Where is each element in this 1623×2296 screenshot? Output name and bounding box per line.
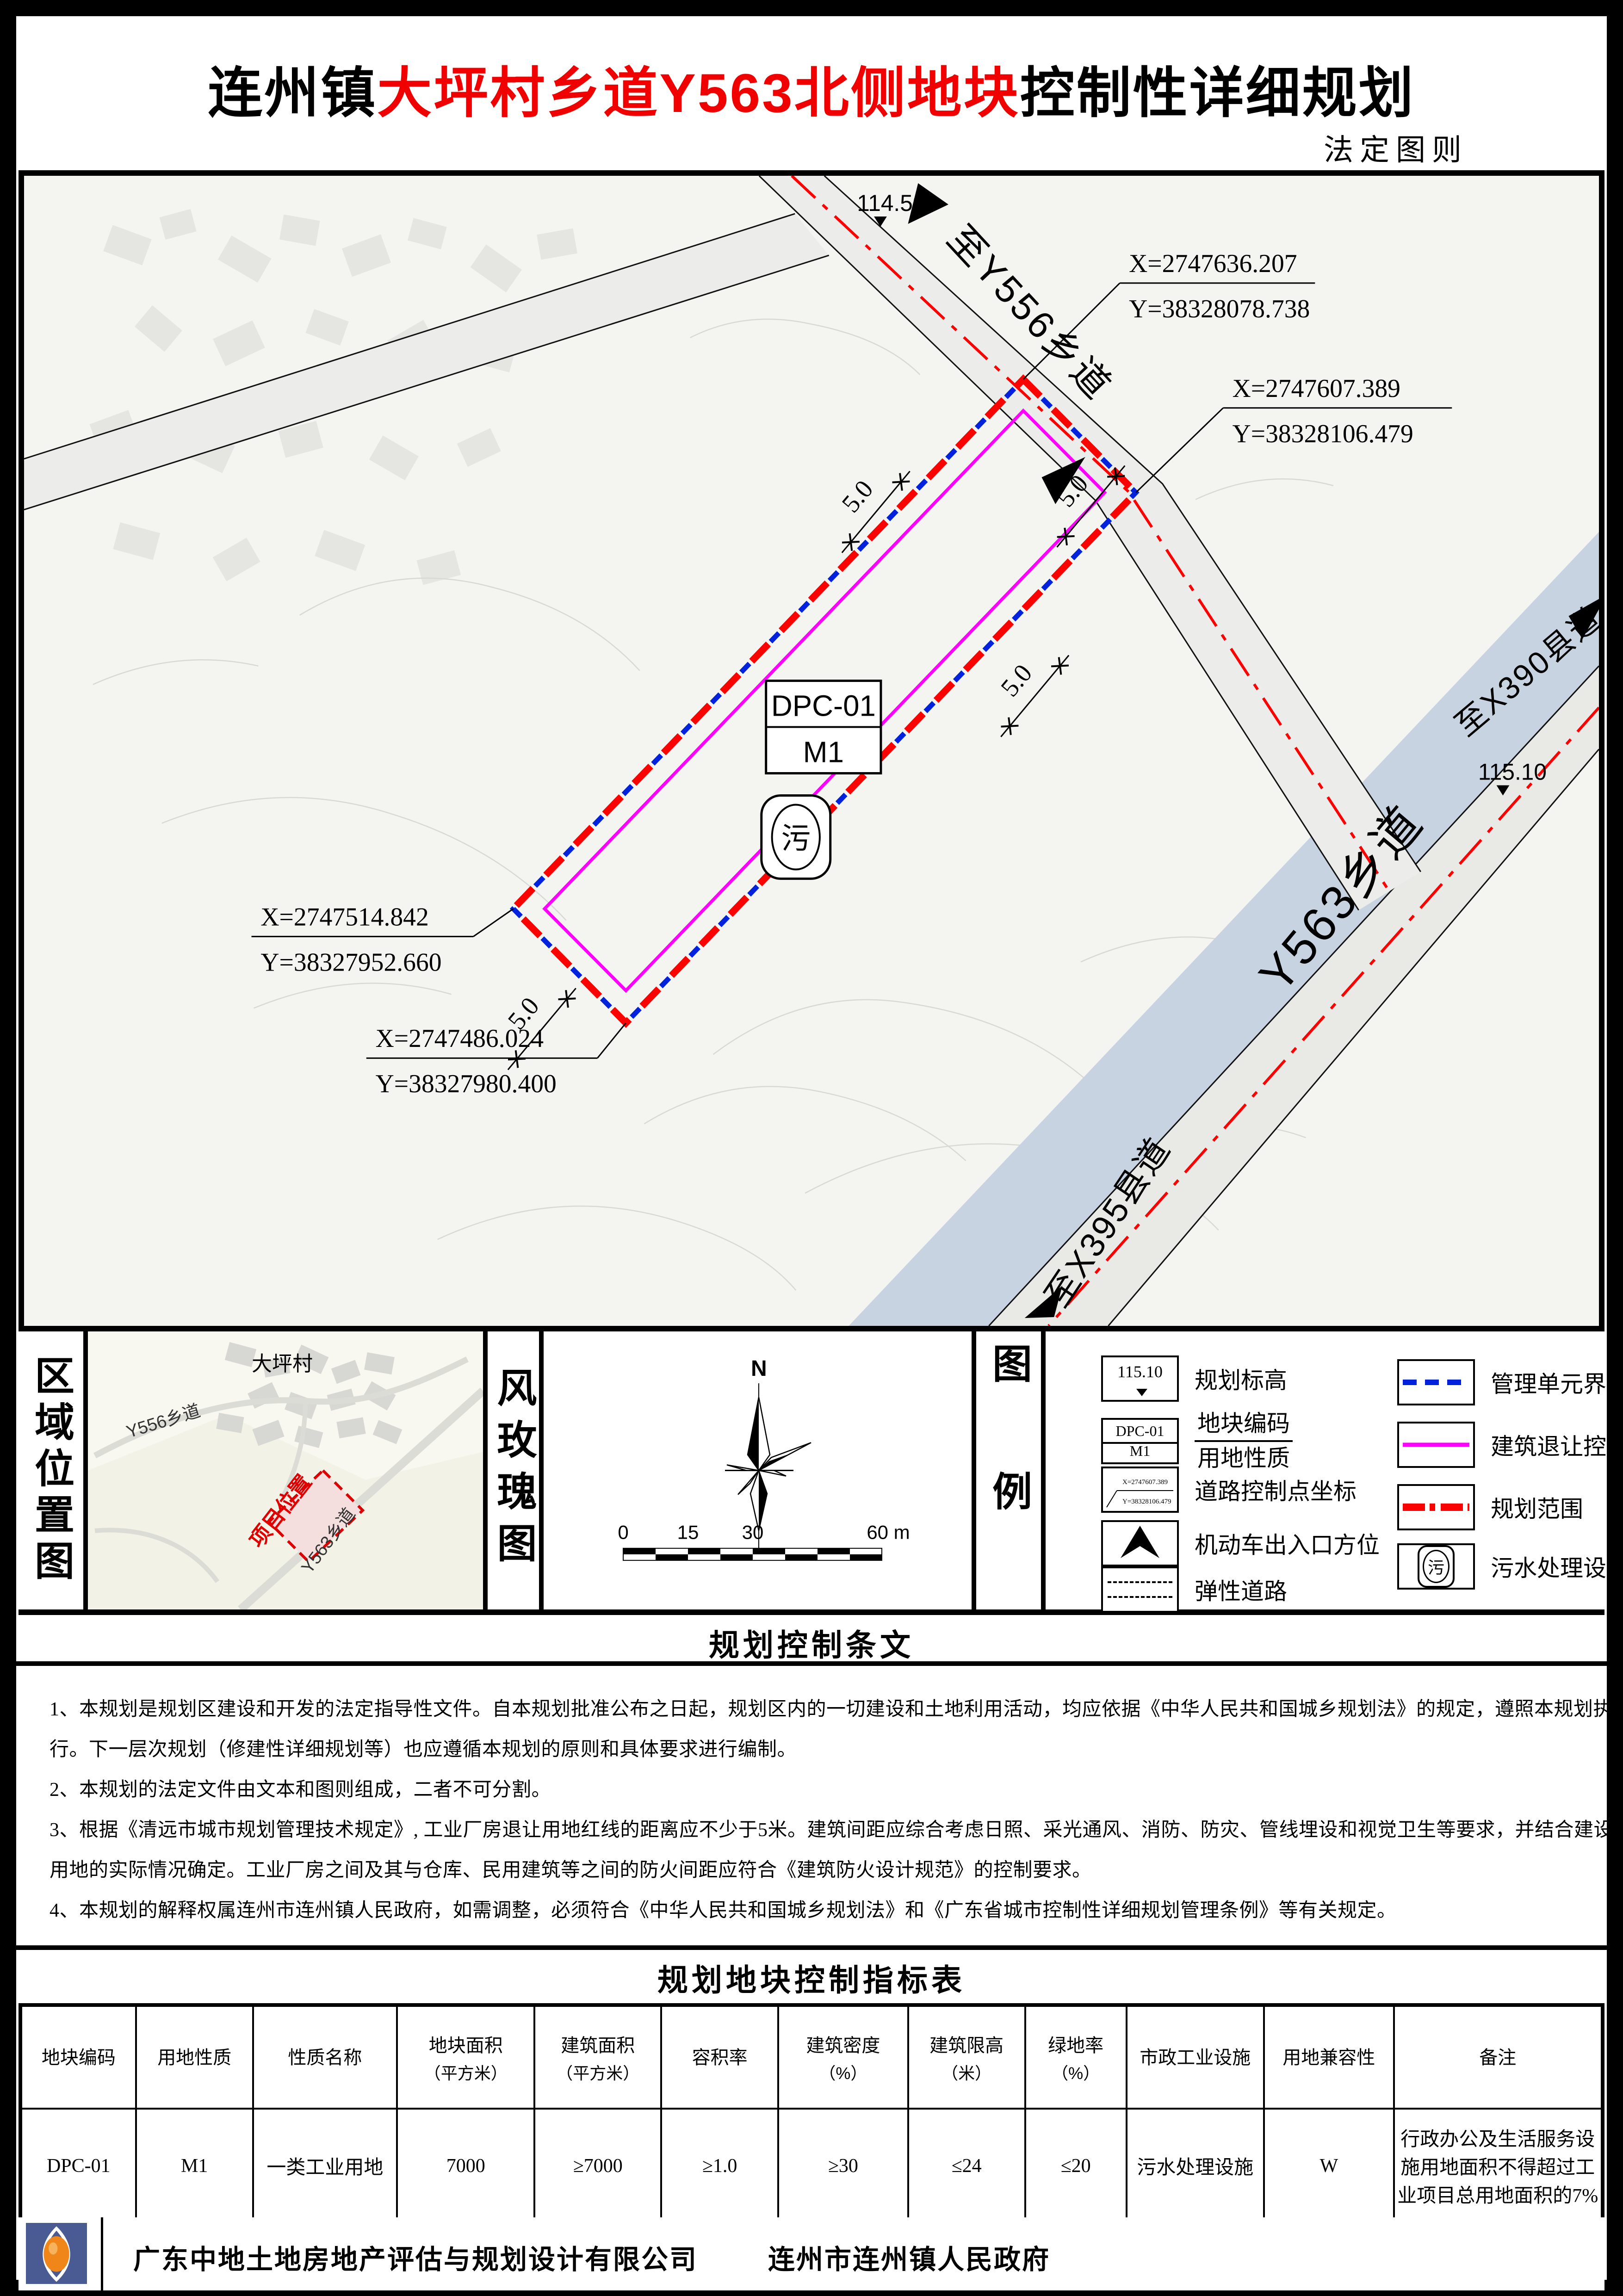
legend-item-plot-code: DPC-01 M1 地块编码 用地性质 [1101,1409,1293,1473]
col-header: 备注 [1394,2005,1603,2109]
provision-line: 1、本规划是规划区建设和开发的法定指导性文件。自本规划批准公布之日起，规划区内的… [50,1687,1576,1727]
arrow-to-y556-icon [908,183,948,224]
cp4-y: Y=38327980.400 [376,1070,557,1098]
cp2-x: X=2747607.389 [1233,374,1400,403]
windrose-icon [727,1397,811,1530]
legend-label: 污水处理设施 [1491,1550,1623,1583]
legend-item-mgmt-unit: 管理单元界线 [1397,1359,1623,1405]
elevation-tick-icon [1136,1389,1147,1396]
scale-0: 0 [618,1522,628,1543]
col-header: 性质名称 [253,2005,397,2109]
sewage-facility-icon: 污 [762,795,830,879]
blue-dash-line [1403,1380,1469,1385]
road-control-point-symbol: X=2747607.389 Y=38328106.479 [1101,1467,1179,1513]
legend-item-entrance: 机动车出入口方位 [1101,1520,1380,1566]
col-header: 地块面积（平方米） [397,2005,535,2109]
legend-item-setback: 建筑退让控制线 [1397,1422,1623,1468]
red-dashdot-line [1403,1504,1469,1511]
legend-label: 管理单元界线 [1491,1366,1623,1399]
provision-line: 用地的实际情况确定。工业厂房之间及其与仓库、民用建筑等之间的防火间距应符合《建筑… [50,1848,1576,1888]
svg-text:5.0: 5.0 [836,475,879,518]
flexible-road-symbol [1101,1566,1179,1613]
plot-code-symbol-use: M1 [1103,1442,1177,1460]
legend-panel-title: 图例 [976,1331,1041,1609]
indicator-table-title: 规划地块控制指标表 [16,1956,1607,2000]
footer-company: 广东中地土地房地产评估与规划设计有限公司 [133,2238,698,2277]
cp1-y: Y=38328078.738 [1129,295,1310,323]
mgmt-unit-symbol [1397,1359,1475,1405]
bottom-panels: 区域位置图 [19,1331,1604,1615]
main-map: DPC-01 M1 污 5.0 5.0 [19,170,1604,1331]
title-prefix: 连州镇 [208,63,377,124]
entrance-symbol [1101,1520,1179,1566]
cell-municipal-facility: 污水处理设施 [1127,2109,1264,2224]
indicator-table: 地块编码 用地性质 性质名称 地块面积（平方米） 建筑面积（平方米） 容积率 建… [19,2003,1604,2226]
company-logo [26,2223,87,2284]
legend-label: 弹性道路 [1195,1573,1287,1606]
legend-label: 地块编码 用地性质 [1195,1409,1293,1473]
dashed-line [1108,1596,1172,1598]
provisions-body: 1、本规划是规划区建设和开发的法定指导性文件。自本规划批准公布之日起，规划区内的… [50,1687,1576,1929]
divider [83,1331,88,1609]
provision-line: 3、根据《清远市城市规划管理技术规定》, 工业厂房退让用地红线的距离应不少于5米… [50,1808,1576,1848]
cell-far: ≥1.0 [661,2109,778,2224]
legend: 115.10 规划标高 DPC-01 M1 地块编码 用地性质 [1046,1331,1604,1609]
cp1-x: X=2747636.207 [1129,249,1297,278]
cp2-y: Y=38328106.479 [1233,420,1413,448]
cell-remark: 行政办公及生活服务设施用地面积不得超过工业项目总用地面积的7% [1394,2109,1603,2224]
col-header: 用地兼容性 [1264,2005,1394,2109]
provision-line: 行。下一层次规划（修建性详细规划等）也应遵循本规划的原则和具体要求进行编制。 [50,1727,1576,1768]
col-header: 地块编码 [20,2005,136,2109]
legend-label: 规划标高 [1195,1362,1287,1395]
plot-code-text: DPC-01 [771,689,876,722]
plot-code-symbol-code: DPC-01 [1103,1423,1177,1440]
col-header: 建筑面积（平方米） [534,2005,661,2109]
location-village-label: 大坪村 [252,1353,313,1375]
plot-code-symbol: DPC-01 M1 [1101,1418,1179,1464]
table-header-row: 地块编码 用地性质 性质名称 地块面积（平方米） 建筑面积（平方米） 容积率 建… [20,2005,1603,2109]
col-header: 市政工业设施 [1127,2005,1264,2109]
divider [16,2290,1607,2296]
col-header: 用地性质 [136,2005,253,2109]
divider [16,1945,1607,1950]
sewage-symbol: 污 [1397,1543,1475,1590]
windrose-panel: N [544,1331,972,1609]
divider [539,1331,544,1609]
title-suffix: 控制性详细规划 [1020,63,1415,124]
scale-30: 30 [742,1522,764,1543]
divider [16,1661,1607,1666]
sheet-inner: 连州镇大坪村乡道Y563北侧地块控制性详细规划 法定图则 [16,16,1607,2280]
legend-item-sewage: 污 污水处理设施 [1397,1543,1623,1590]
elevation-east: 115.10 [1478,759,1547,785]
table-data-row: DPC-01 M1 一类工业用地 7000 ≥7000 ≥1.0 ≥30 ≤24… [20,2109,1603,2224]
location-map: 大坪村 Y556乡道 Y563乡道 项目位置 [88,1331,483,1609]
scale-60: 60 m [867,1522,910,1543]
provision-line: 4、本规划的解释权属连州市连州镇人民政府，如需调整，必须符合《中华人民共和国城乡… [50,1888,1576,1929]
legend-label: 机动车出入口方位 [1195,1527,1380,1560]
legend-label: 道路控制点坐标 [1195,1473,1357,1506]
elevation-symbol: 115.10 [1101,1355,1179,1402]
setback-symbol [1397,1422,1475,1468]
cp4-x: X=2747486.024 [376,1024,544,1053]
footer: 广东中地土地房地产评估与规划设计有限公司 连州市连州镇人民政府 [19,2217,1604,2293]
location-panel-title: 区域位置图 [19,1331,83,1609]
cp3-y: Y=38327952.660 [260,948,441,977]
north-label: N [751,1356,767,1381]
svg-text:5.0: 5.0 [995,659,1038,702]
page-subtitle: 法定图则 [1324,126,1468,169]
cell-green-rate: ≤20 [1025,2109,1127,2224]
plan-sheet: 连州镇大坪村乡道Y563北侧地块控制性详细规划 法定图则 [0,0,1623,2296]
divider [1041,1331,1046,1609]
legend-item-elevation: 115.10 规划标高 [1101,1355,1287,1402]
cp3-x: X=2747514.842 [260,903,428,931]
dashed-line [1108,1581,1172,1583]
sewage-glyph: 污 [781,822,811,855]
provisions-title: 规划控制条文 [16,1621,1607,1665]
legend-label-top: 地块编码 [1195,1409,1293,1442]
col-header: 绿地率（%） [1025,2005,1127,2109]
plot-code-box: DPC-01 M1 [766,681,881,774]
page-title: 连州镇大坪村乡道Y563北侧地块控制性详细规划 [16,49,1607,128]
main-map-svg: DPC-01 M1 污 5.0 5.0 [24,176,1599,1326]
title-highlight: 大坪村乡道Y563北侧地块 [377,63,1020,124]
sewage-glyph: 污 [1423,1550,1450,1583]
col-header: 建筑密度（%） [778,2005,908,2109]
plot-use-text: M1 [803,735,844,768]
col-header: 容积率 [661,2005,778,2109]
legend-item-road-control-point: X=2747607.389 Y=38328106.479 道路控制点坐标 [1101,1467,1357,1513]
planning-scope-symbol [1397,1484,1475,1530]
legend-label: 规划范围 [1491,1491,1583,1524]
divider [101,2217,103,2293]
legend-label: 建筑退让控制线 [1491,1428,1623,1461]
cell-building-area: ≥7000 [534,2109,661,2224]
legend-item-planning-scope: 规划范围 [1397,1484,1583,1530]
road-branch [24,214,829,510]
legend-item-flexible-road: 弹性道路 [1101,1566,1287,1613]
divider [972,1331,976,1609]
setback-dim-4: 5.0 [479,964,581,1074]
col-header: 建筑限高（米） [908,2005,1025,2109]
scale-bar: 0 15 30 60 m [618,1522,910,1560]
road-point-y: Y=38328106.479 [1122,1498,1171,1505]
scale-15: 15 [677,1522,699,1543]
magenta-line [1403,1443,1469,1447]
cell-use-name: 一类工业用地 [253,2109,397,2224]
cell-use-code: M1 [136,2109,253,2224]
footer-government: 连州市连州镇人民政府 [768,2238,1050,2277]
road-point-x: X=2747607.389 [1122,1479,1168,1486]
cell-compatibility: W [1264,2109,1394,2224]
cell-density: ≥30 [778,2109,908,2224]
cell-plot-code: DPC-01 [20,2109,136,2224]
provision-line: 2、本规划的法定文件由文本和图则组成，二者不可分割。 [50,1768,1576,1808]
windrose-panel-title: 风玫瑰图 [488,1331,539,1609]
elevation-symbol-value: 115.10 [1103,1362,1177,1381]
cell-plot-area: 7000 [397,2109,535,2224]
entrance-arrow-glyph [1121,1526,1159,1558]
cell-height-limit: ≤24 [908,2109,1025,2224]
